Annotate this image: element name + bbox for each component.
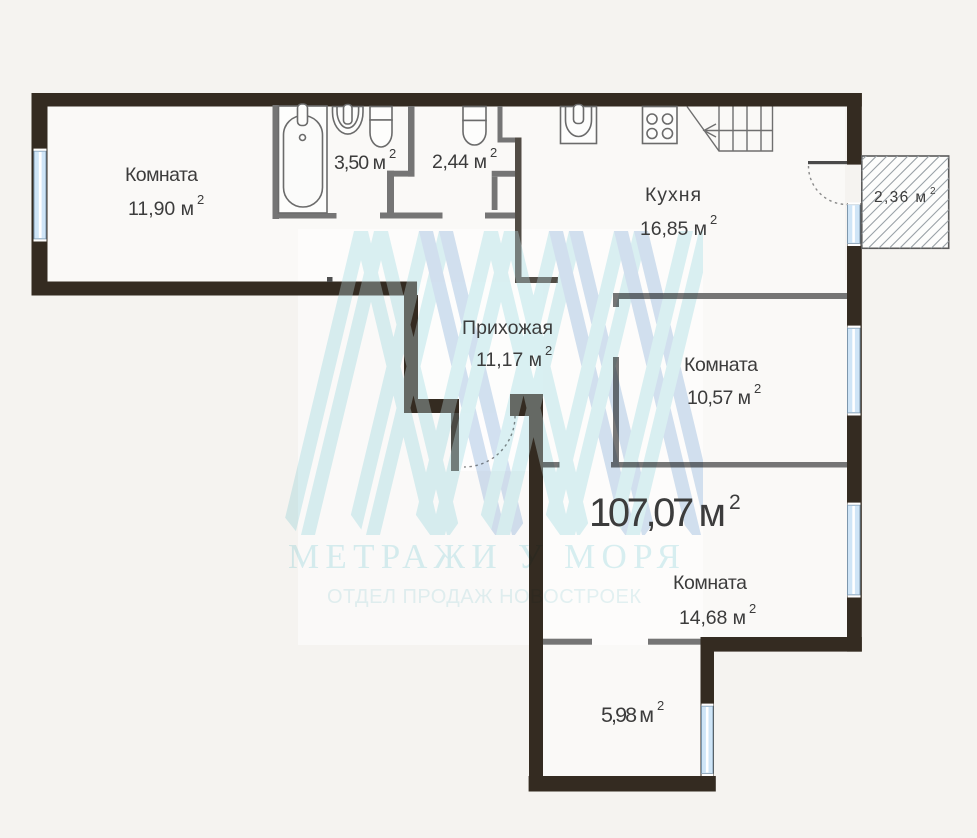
svg-text:5,98 м: 5,98 м [601,703,654,727]
svg-text:2: 2 [490,145,497,160]
svg-text:2,44 м: 2,44 м [432,151,487,173]
svg-text:16,85 м: 16,85 м [640,218,707,240]
svg-text:10,57 м: 10,57 м [687,387,751,409]
svg-text:Комната: Комната [673,572,747,594]
svg-text:Прихожая: Прихожая [462,317,553,339]
svg-text:3,50 м: 3,50 м [334,152,386,174]
svg-text:2: 2 [754,381,761,396]
svg-text:2: 2 [710,212,717,227]
svg-text:107,07 м: 107,07 м [589,491,726,535]
svg-text:11,90 м: 11,90 м [128,198,194,220]
svg-text:2: 2 [749,601,756,616]
svg-text:2: 2 [545,343,552,358]
svg-text:2,36 м: 2,36 м [874,189,926,206]
svg-text:14,68 м: 14,68 м [679,607,746,629]
svg-text:МЕТРАЖИ У МОРЯ: МЕТРАЖИ У МОРЯ [288,537,680,576]
svg-text:2: 2 [657,698,664,713]
svg-text:11,17 м: 11,17 м [476,349,542,371]
svg-text:ОТДЕЛ ПРОДАЖ НОВОСТРОЕК: ОТДЕЛ ПРОДАЖ НОВОСТРОЕК [327,586,641,608]
svg-text:2: 2 [197,192,204,207]
svg-text:Кухня: Кухня [645,184,701,206]
svg-text:Комната: Комната [125,164,198,186]
svg-text:2: 2 [729,491,741,514]
svg-text:Комната: Комната [684,354,758,376]
svg-text:2: 2 [389,146,396,161]
svg-text:2: 2 [930,186,936,197]
